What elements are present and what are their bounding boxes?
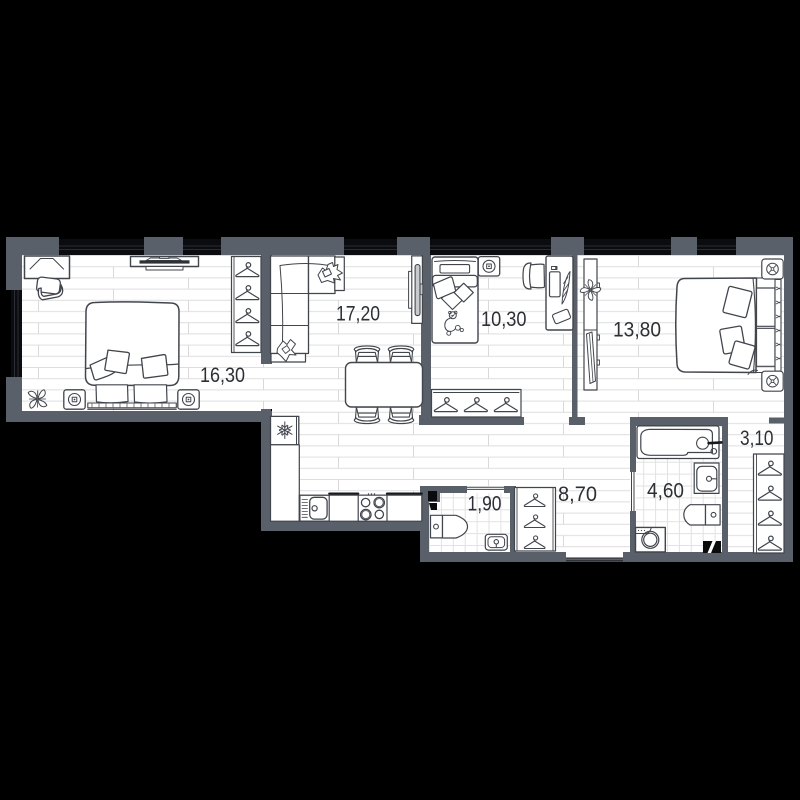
svg-text:8,70: 8,70 [558,482,597,506]
svg-text:13,80: 13,80 [613,318,661,342]
svg-text:10,30: 10,30 [481,307,527,331]
svg-text:1,90: 1,90 [468,492,502,516]
svg-text:16,30: 16,30 [200,363,245,387]
svg-text:17,20: 17,20 [336,302,380,326]
svg-text:3,10: 3,10 [740,426,774,450]
svg-text:4,60: 4,60 [647,479,684,503]
